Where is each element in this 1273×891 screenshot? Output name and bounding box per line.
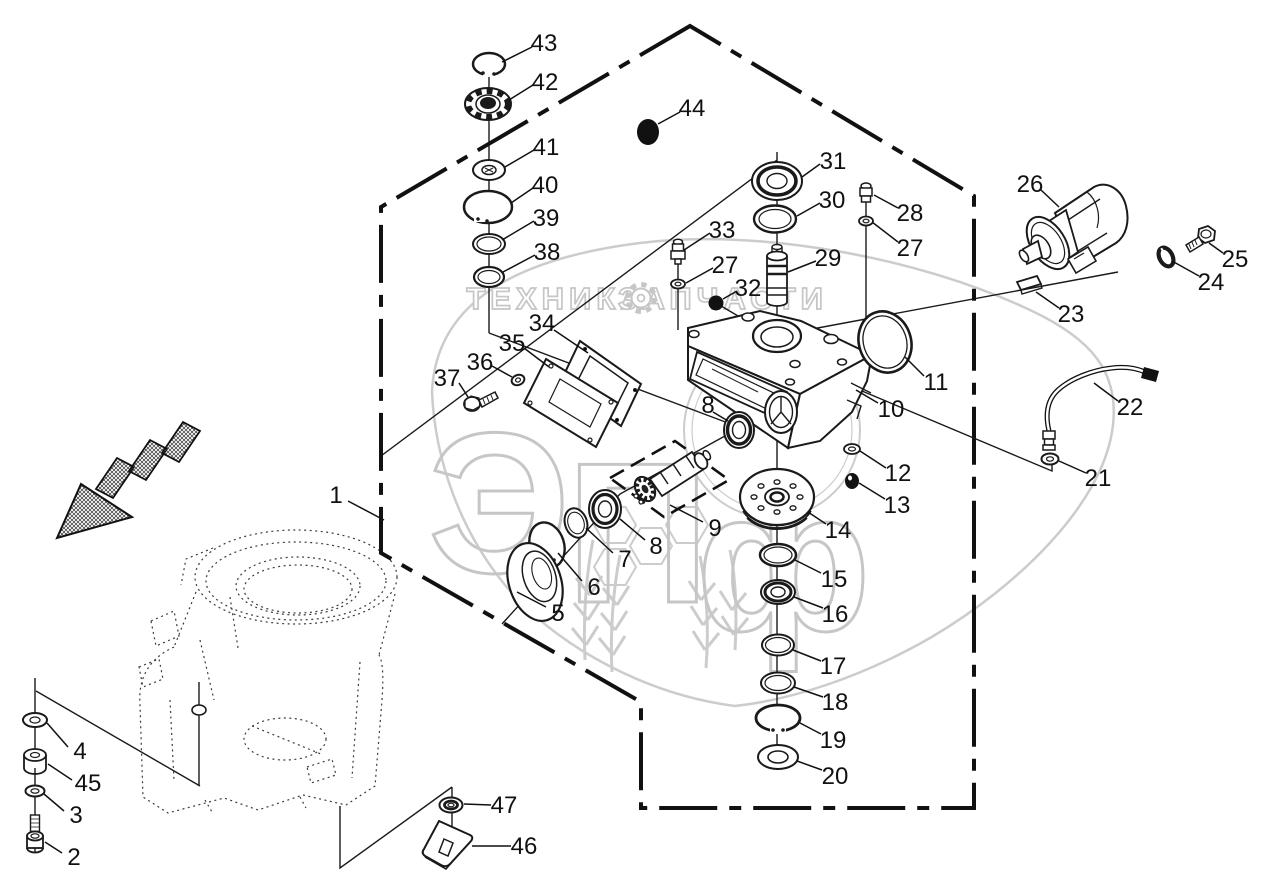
part-callout-46: 46 (511, 833, 538, 860)
part-callout-37: 37 (434, 365, 461, 392)
part-callout-25: 25 (1222, 246, 1249, 273)
part-callout-36: 36 (467, 349, 494, 376)
leader-line-2 (45, 842, 62, 853)
diagram-page: Э П ф ТЕХНИКА ЗАПЧАСТИ (0, 0, 1273, 891)
leader-line-3 (44, 794, 64, 811)
leader-line-19 (800, 723, 821, 734)
leader-line-21 (1059, 461, 1086, 473)
part-callout-20: 20 (822, 763, 849, 790)
part-callout-19: 19 (820, 727, 847, 754)
exploded-parts-diagram: Э П ф ТЕХНИКА ЗАПЧАСТИ (0, 0, 1273, 891)
part-callout-33: 33 (709, 217, 736, 244)
part-callout-34: 34 (529, 310, 556, 337)
leader-line-29 (788, 261, 816, 272)
leader-line-4 (47, 723, 68, 747)
phantom-housing (139, 530, 397, 813)
leader-line-39 (502, 221, 534, 240)
leader-line-43 (502, 47, 532, 62)
part-callout-6: 6 (587, 574, 600, 601)
part-callout-16: 16 (822, 601, 849, 628)
part-callout-10: 10 (878, 396, 905, 423)
leader-line-23 (1036, 292, 1059, 308)
part-callout-8: 8 (649, 533, 662, 560)
leader-line-22 (1094, 383, 1118, 401)
part-callout-44: 44 (679, 95, 706, 122)
part-callout-31: 31 (820, 148, 847, 175)
part-callout-5: 5 (551, 600, 564, 627)
part-callout-7: 7 (618, 546, 631, 573)
leader-line-47 (464, 804, 491, 805)
mount-hole (192, 705, 206, 715)
part-44-plug (637, 119, 659, 145)
part-callout-4: 4 (73, 738, 86, 765)
leader-line-11 (905, 357, 924, 376)
part-callout-8: 8 (701, 392, 714, 419)
part-callout-29: 29 (815, 245, 842, 272)
parts-43-38 (464, 53, 512, 287)
leader-line-30 (797, 203, 820, 216)
leader-line-41 (505, 150, 534, 167)
part-callout-2: 2 (67, 844, 80, 871)
part-callout-40: 40 (532, 172, 559, 199)
part-callout-28: 28 (897, 200, 924, 227)
part-callout-26: 26 (1017, 171, 1044, 198)
leader-line-28 (874, 195, 898, 208)
part-callout-47: 47 (491, 792, 518, 819)
hydraulic-motor (1017, 185, 1215, 294)
part-callout-23: 23 (1058, 301, 1085, 328)
part-callout-21: 21 (1085, 465, 1112, 492)
part-callout-38: 38 (534, 239, 561, 266)
part-callout-11: 11 (924, 369, 949, 396)
part-callout-32: 32 (735, 275, 762, 302)
leader-line-31 (802, 164, 820, 177)
gearbox-housing (688, 311, 872, 448)
part-callout-27: 27 (897, 235, 924, 262)
part-callout-43: 43 (531, 30, 558, 57)
leader-line-44 (658, 112, 680, 124)
part-callout-30: 30 (819, 187, 846, 214)
part-callout-1: 1 (329, 482, 342, 509)
parts-46-47 (423, 798, 473, 870)
part-callout-41: 41 (533, 134, 560, 161)
part-callout-12: 12 (885, 460, 912, 487)
leader-line-34 (554, 330, 588, 353)
leader-line-24 (1172, 261, 1199, 276)
part-callout-35: 35 (499, 330, 526, 357)
part-callout-18: 18 (822, 689, 849, 716)
leader-line-33 (684, 233, 710, 250)
part-callout-45: 45 (75, 770, 102, 797)
part-callout-39: 39 (533, 205, 560, 232)
part-callout-22: 22 (1117, 394, 1144, 421)
part-callout-15: 15 (821, 566, 848, 593)
part-callout-14: 14 (825, 517, 852, 544)
part-callout-17: 17 (820, 653, 847, 680)
part-callout-42: 42 (532, 69, 559, 96)
part-callout-3: 3 (69, 802, 82, 829)
leader-line-40 (511, 188, 533, 203)
leader-line-45 (48, 764, 72, 780)
leader-line-26 (1041, 190, 1059, 207)
leader-line-42 (509, 85, 533, 100)
leader-line-1 (348, 501, 384, 520)
part-callout-13: 13 (884, 492, 911, 519)
part-callout-24: 24 (1198, 269, 1225, 296)
direction-arrow-icon (57, 422, 200, 538)
leader-line-20 (797, 761, 822, 770)
part-callout-9: 9 (708, 515, 721, 542)
leader-line-27 (872, 222, 898, 242)
